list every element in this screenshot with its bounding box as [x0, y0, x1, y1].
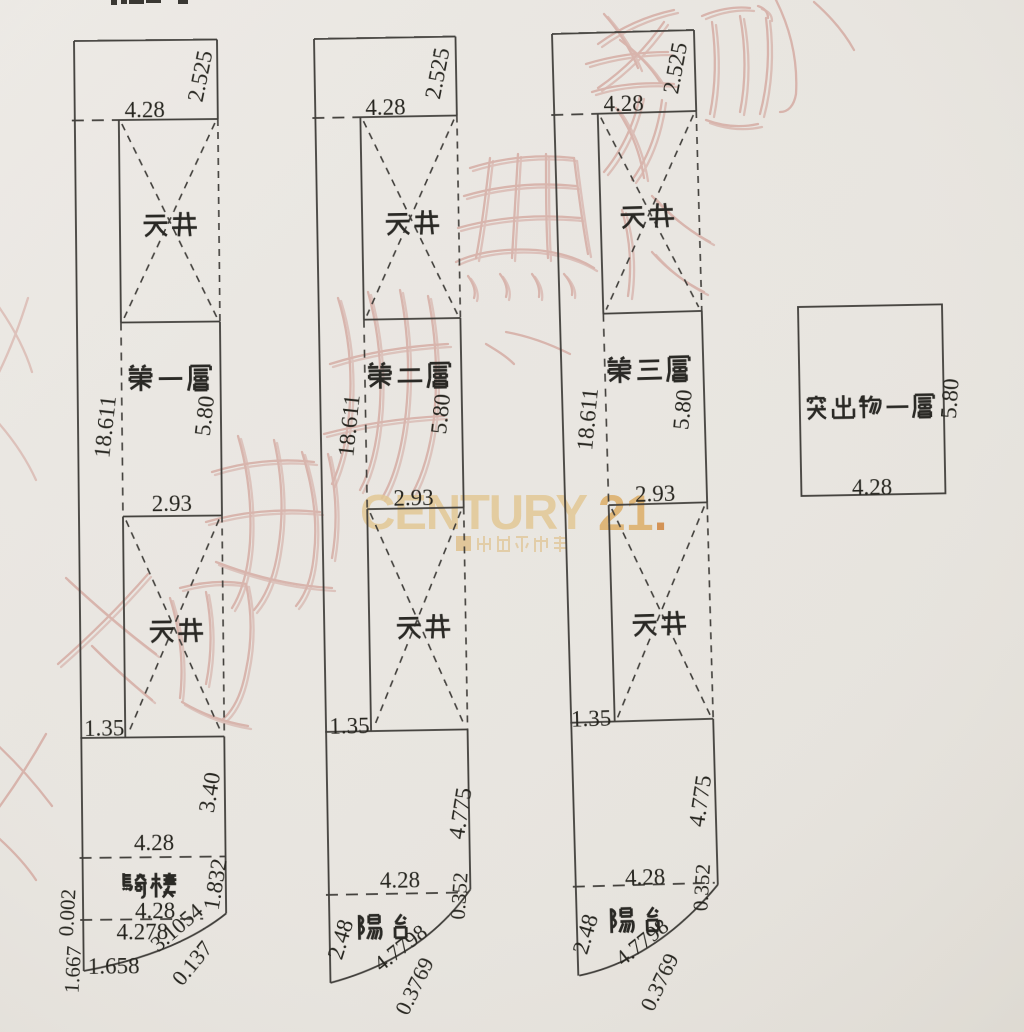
svg-text:5.80: 5.80 — [668, 388, 697, 430]
svg-text:5.80: 5.80 — [936, 378, 964, 420]
svg-text:1.35: 1.35 — [571, 706, 612, 732]
svg-text:4.28: 4.28 — [365, 94, 406, 120]
svg-text:1.35: 1.35 — [329, 713, 370, 739]
svg-text:4.28: 4.28 — [124, 97, 165, 122]
svg-text:4.28: 4.28 — [380, 867, 421, 893]
svg-text:2.93: 2.93 — [152, 491, 193, 516]
svg-text:0.352: 0.352 — [445, 872, 472, 921]
svg-text:4.28: 4.28 — [625, 864, 666, 890]
svg-text:1.667: 1.667 — [59, 945, 86, 994]
svg-text:4.28: 4.28 — [852, 474, 893, 500]
svg-text:4.28: 4.28 — [134, 830, 175, 855]
svg-text:1.658: 1.658 — [88, 953, 140, 979]
svg-text:5.80: 5.80 — [426, 393, 455, 436]
svg-text:0.352: 0.352 — [688, 863, 715, 912]
svg-text:2.93: 2.93 — [393, 485, 434, 511]
svg-text:4.28: 4.28 — [603, 90, 644, 116]
svg-text:5.80: 5.80 — [190, 394, 219, 437]
svg-text:1.35: 1.35 — [84, 716, 125, 741]
svg-text:2.93: 2.93 — [635, 481, 676, 507]
svg-text:0.002: 0.002 — [54, 888, 81, 937]
